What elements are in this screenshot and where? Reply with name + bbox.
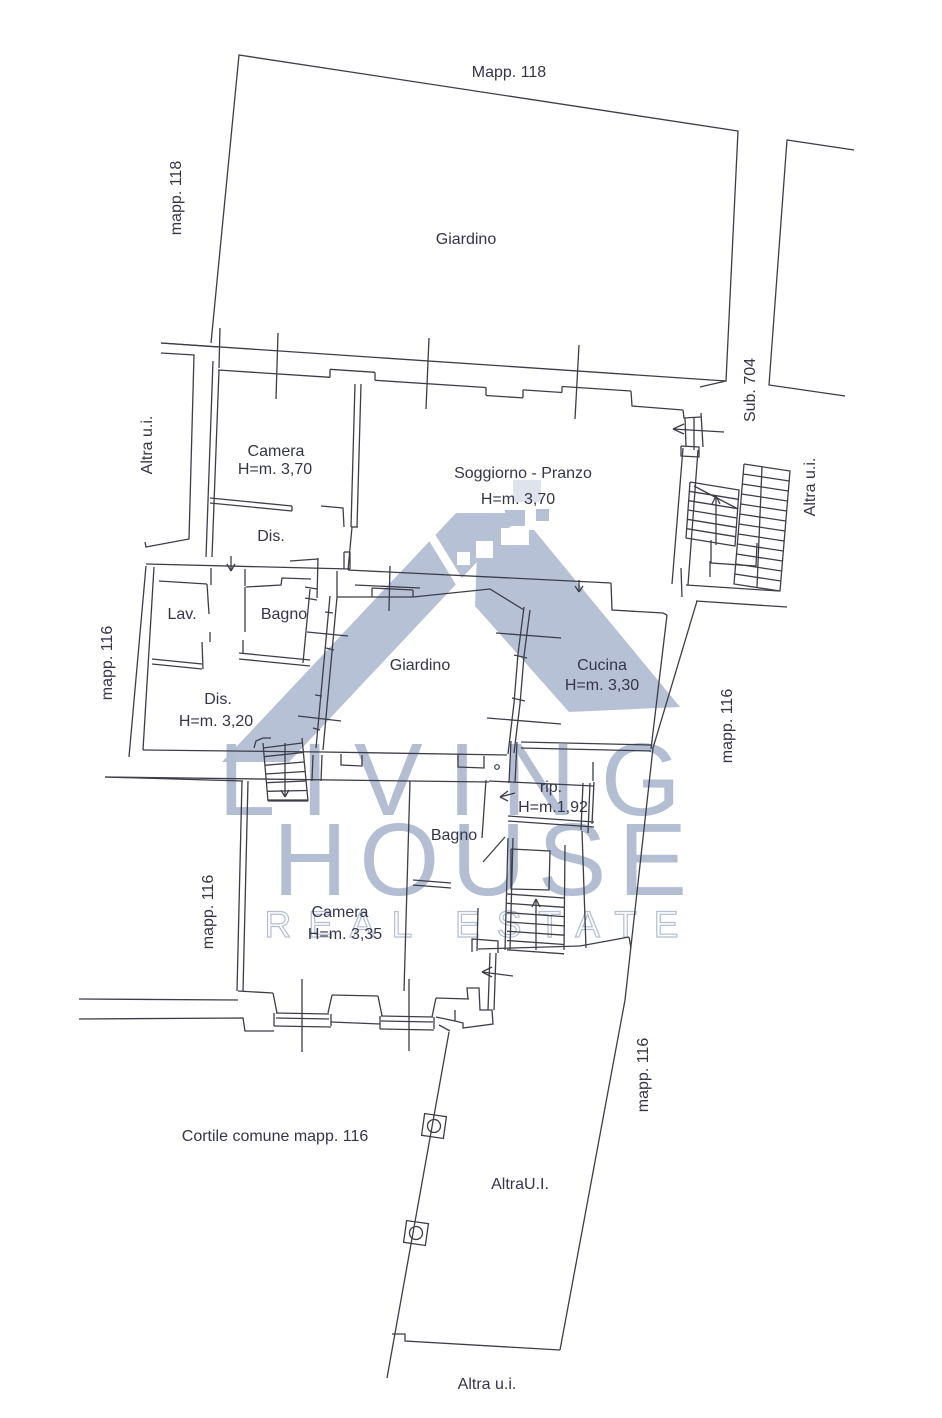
svg-text:mapp. 116: mapp. 116	[200, 875, 217, 950]
svg-text:H=m. 3,30: H=m. 3,30	[565, 677, 639, 694]
svg-text:AltraU.I.: AltraU.I.	[491, 1176, 549, 1193]
svg-text:Camera: Camera	[312, 904, 369, 921]
svg-text:H=m. 3,20: H=m. 3,20	[179, 713, 253, 730]
svg-text:Altra u.i.: Altra u.i.	[802, 458, 819, 517]
svg-text:Cortile comune mapp. 116: Cortile comune mapp. 116	[182, 1128, 369, 1145]
svg-text:rip.: rip.	[540, 779, 562, 796]
svg-text:Altra u.i.: Altra u.i.	[139, 416, 156, 475]
svg-text:mapp. 116: mapp. 116	[635, 1038, 652, 1113]
svg-text:H=m. 3,70: H=m. 3,70	[238, 461, 312, 478]
svg-text:Bagno: Bagno	[431, 827, 477, 844]
svg-text:H=m. 3,70: H=m. 3,70	[481, 491, 555, 508]
svg-text:Sub. 704: Sub. 704	[742, 358, 759, 422]
svg-text:Giardino: Giardino	[436, 231, 497, 248]
svg-text:H=m.1,92: H=m.1,92	[518, 799, 588, 816]
svg-text:H=m. 3,35: H=m. 3,35	[308, 926, 382, 943]
svg-text:mapp. 118: mapp. 118	[168, 161, 185, 236]
svg-text:Dis.: Dis.	[257, 528, 285, 545]
svg-text:Mapp. 118: Mapp. 118	[472, 64, 547, 81]
svg-text:Bagno: Bagno	[261, 606, 307, 623]
svg-text:Altra u.i.: Altra u.i.	[458, 1376, 517, 1393]
svg-text:mapp. 116: mapp. 116	[99, 626, 116, 701]
svg-text:Camera: Camera	[248, 443, 305, 460]
svg-text:Soggiorno - Pranzo: Soggiorno - Pranzo	[454, 465, 592, 482]
svg-text:Cucina: Cucina	[577, 657, 627, 674]
svg-text:Giardino: Giardino	[390, 657, 451, 674]
svg-text:mapp. 116: mapp. 116	[719, 689, 736, 764]
svg-text:Lav.: Lav.	[167, 606, 196, 623]
svg-text:Dis.: Dis.	[204, 691, 232, 708]
